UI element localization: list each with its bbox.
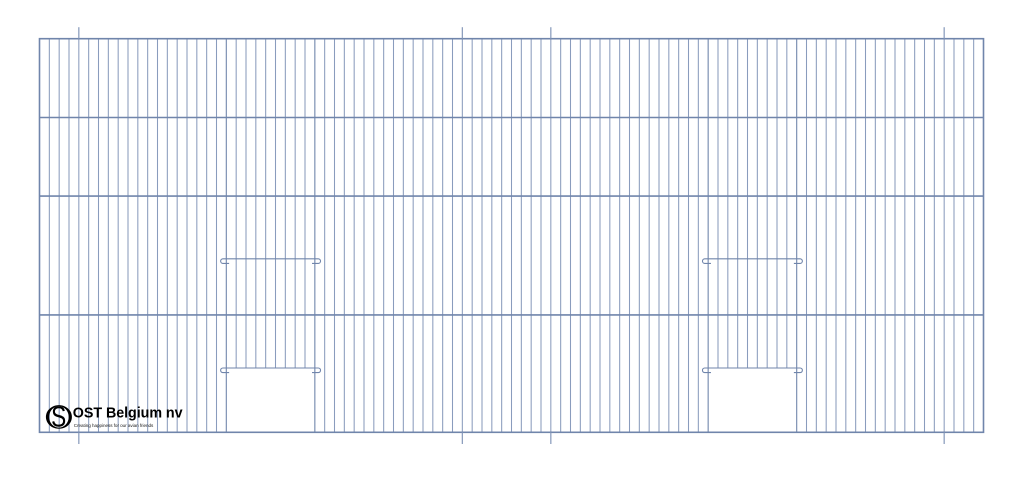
svg-text:OST Belgium nv: OST Belgium nv [73, 406, 183, 422]
svg-text:Creating happiness for our avi: Creating happiness for our avian friends [74, 423, 154, 428]
svg-text:S: S [51, 400, 66, 433]
